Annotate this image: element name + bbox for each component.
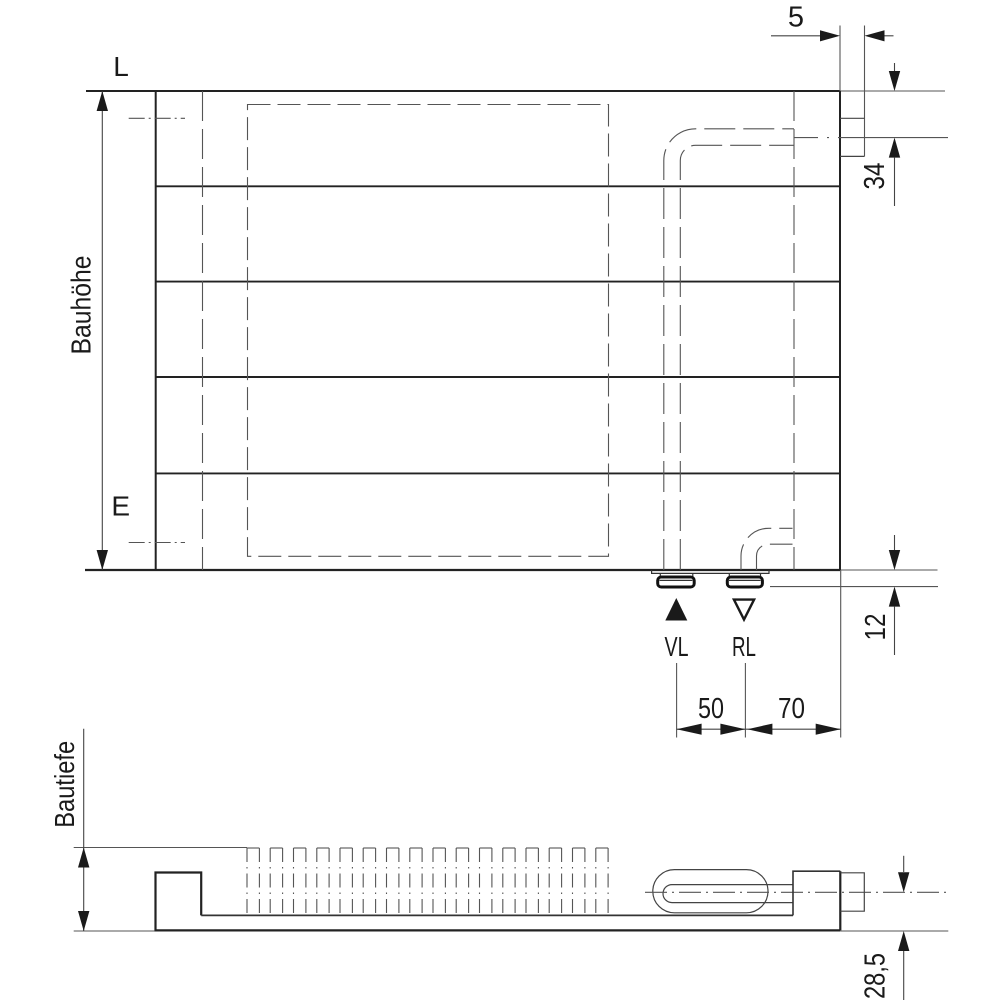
svg-text:L: L bbox=[113, 51, 129, 82]
svg-text:VL: VL bbox=[665, 631, 689, 662]
svg-text:12: 12 bbox=[860, 614, 892, 641]
svg-text:70: 70 bbox=[778, 693, 805, 725]
svg-text:28,5: 28,5 bbox=[860, 953, 892, 999]
svg-text:34: 34 bbox=[859, 163, 891, 190]
svg-text:5: 5 bbox=[788, 2, 804, 34]
svg-text:RL: RL bbox=[732, 631, 756, 662]
svg-text:Bautiefe: Bautiefe bbox=[49, 741, 80, 828]
svg-text:Bauhöhe: Bauhöhe bbox=[66, 256, 97, 355]
svg-text:50: 50 bbox=[698, 693, 724, 725]
svg-text:E: E bbox=[111, 491, 130, 522]
